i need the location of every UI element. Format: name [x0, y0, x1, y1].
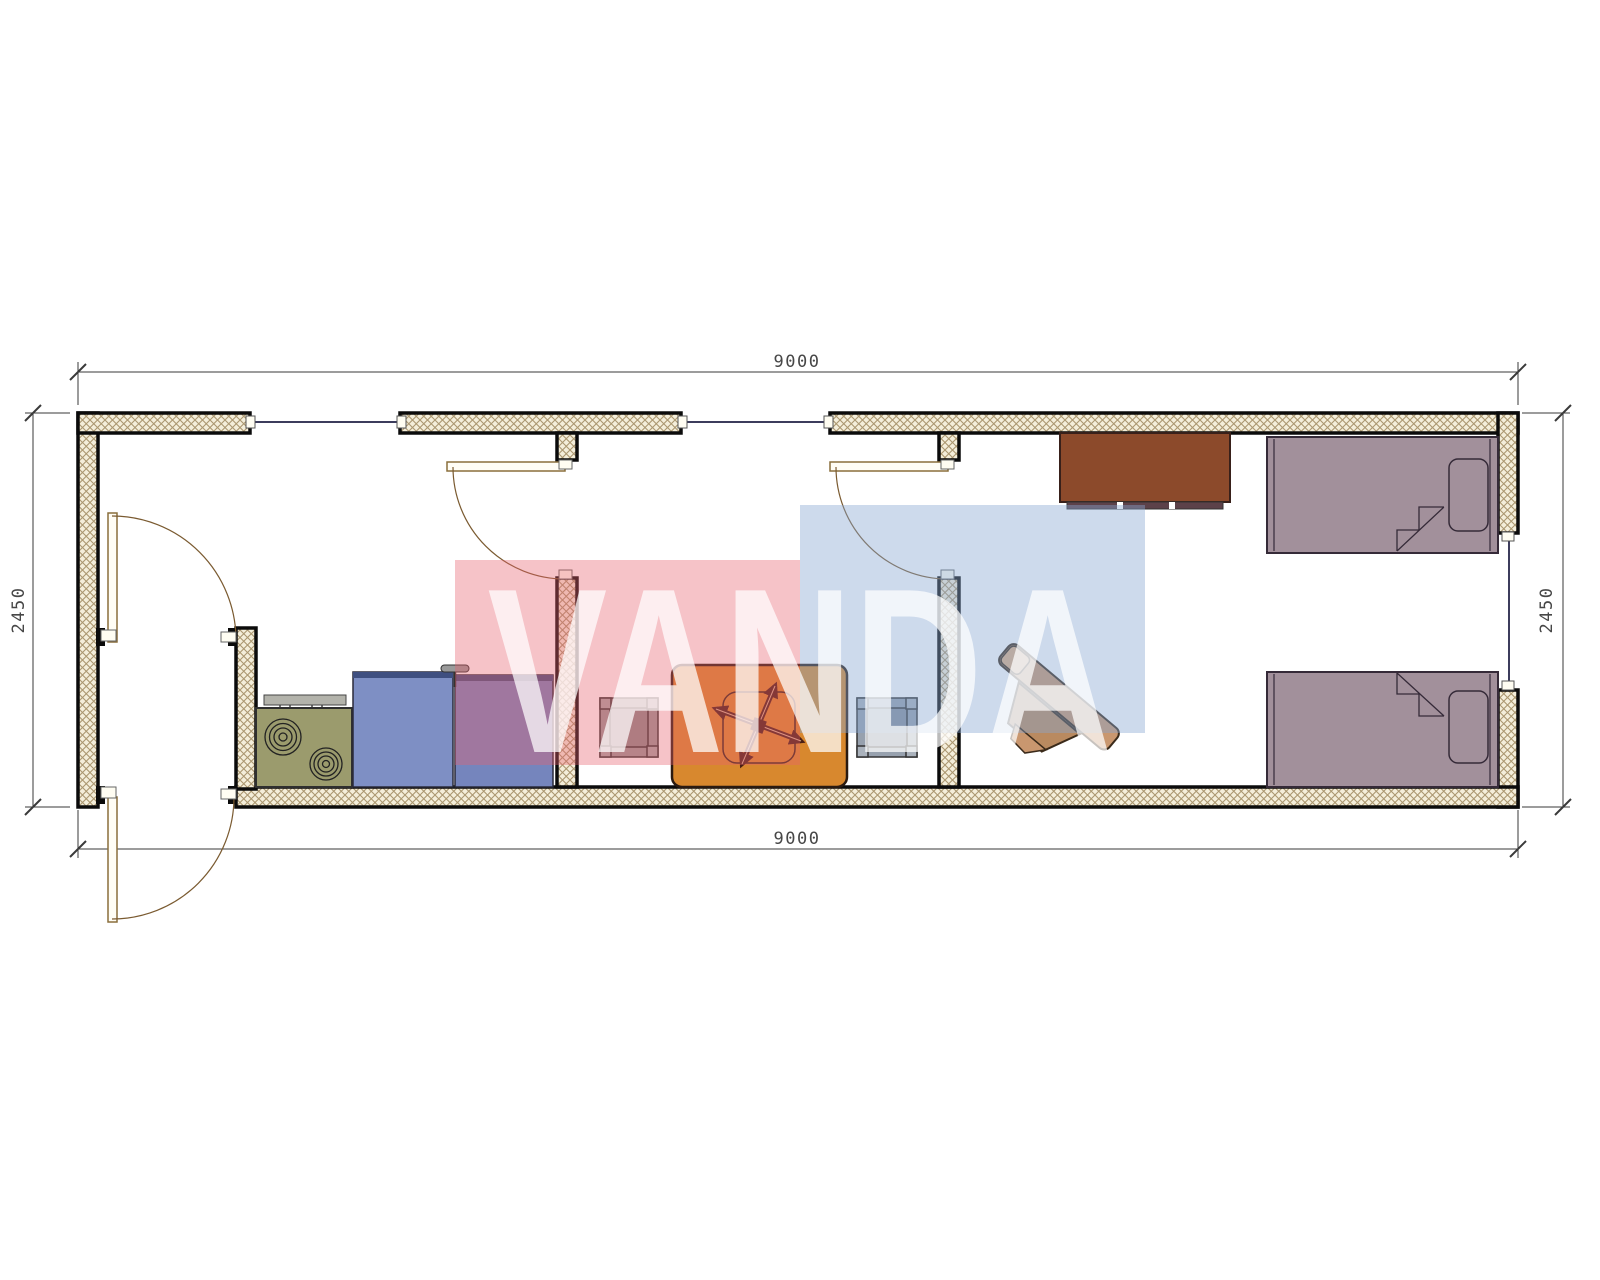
- door-leaf-vestibule-interior: [108, 513, 117, 642]
- wall-top-segment-2: [400, 413, 681, 433]
- door-swing-arc-vestibule-interior: [112, 516, 236, 640]
- stove-control-panel: [264, 695, 346, 705]
- wall-top-segment-1: [78, 413, 250, 433]
- dimension-left: 2450: [9, 405, 70, 815]
- door-leaf-room-1: [447, 462, 565, 471]
- stove: [256, 695, 352, 787]
- wall-top-segment-3: [830, 413, 1518, 433]
- wall-right-upper: [1498, 413, 1518, 533]
- floor-plan-drawing: 9000 9000 2450 2450: [0, 0, 1600, 1280]
- wall-left: [78, 413, 98, 807]
- door-stops: [96, 628, 237, 804]
- dim-label-left: 2450: [9, 587, 29, 634]
- dim-label-right: 2450: [1537, 587, 1557, 634]
- bed-bottom: [1267, 672, 1498, 787]
- wall-partition-2-stub: [939, 433, 959, 460]
- counter-cabinet-body: [353, 672, 453, 787]
- bed-bottom-mattress: [1267, 672, 1498, 787]
- door-swing-arc-entry: [112, 797, 234, 919]
- door-leaf-entry: [108, 797, 117, 922]
- dresser: [1060, 433, 1230, 509]
- floor-plan-canvas: 9000 9000 2450 2450: [0, 0, 1600, 1280]
- dimension-bottom: 9000: [70, 810, 1526, 858]
- bed-top: [1267, 437, 1498, 553]
- dim-label-bottom: 9000: [774, 829, 821, 849]
- dimension-right: 2450: [1522, 405, 1571, 815]
- watermark-text: VANDA: [488, 539, 1113, 802]
- counter-cabinet: [353, 672, 453, 787]
- wall-vestibule-kitchen: [236, 628, 256, 789]
- bed-top-mattress: [1267, 437, 1498, 553]
- door-leaf-room-2: [830, 462, 948, 471]
- dim-label-top: 9000: [774, 352, 821, 372]
- watermark: VANDA: [455, 505, 1145, 802]
- wall-partition-1-stub: [557, 433, 577, 460]
- dresser-body: [1060, 433, 1230, 502]
- counter-cabinet-edge: [353, 672, 453, 678]
- dimension-top: 9000: [70, 352, 1526, 405]
